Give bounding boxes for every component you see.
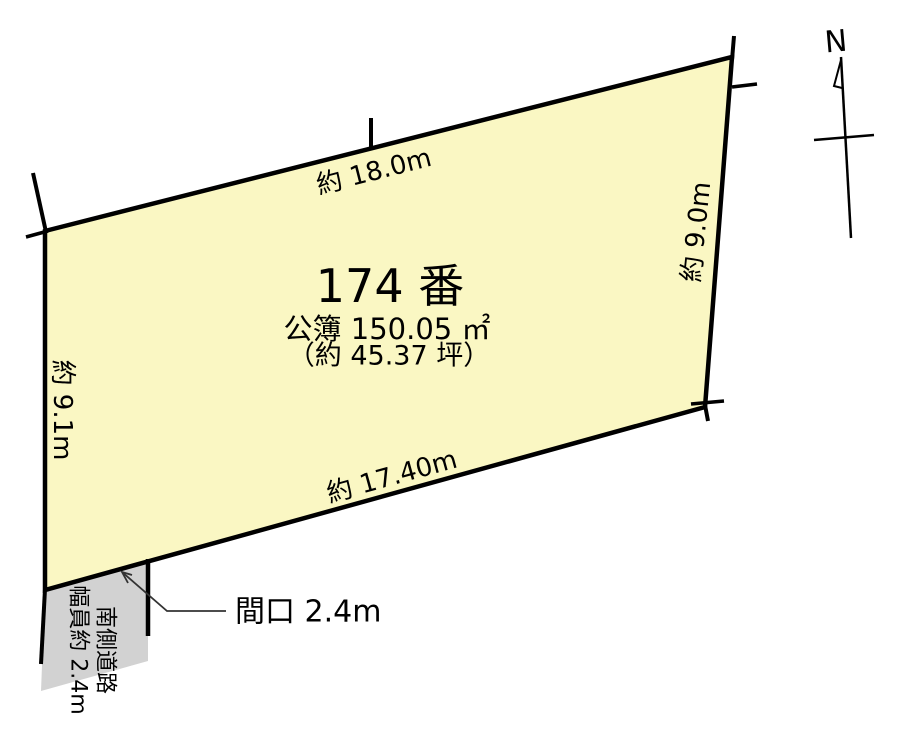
site-plan: 約 18.0m 約 9.0m 約 9.1m 約 17.40m 174 番 公簿 … [0,0,911,748]
right-edge-boundary-tick [732,84,757,87]
top-left-corner-vertical-tick [33,173,46,232]
road-label-line2: 幅員約 2.4m [66,585,91,714]
site-plan-svg: 約 18.0m 約 9.0m 約 9.1m 約 17.40m 174 番 公簿 … [0,0,911,748]
north-arrow-shaft [841,57,851,238]
north-arrow-cross [814,135,874,140]
bottom-right-corner-vertical-tick [705,405,708,421]
road-label-line1: 南側道路 [93,606,118,694]
frontage-label: 間口 2.4m [235,595,381,630]
top-right-corner-vertical-tick [732,36,734,60]
lot-area-tsubo: （約 45.37 坪） [288,341,490,372]
lot-number: 174 番 [316,259,464,313]
north-label: N [823,24,848,61]
edge-label-left: 約 9.1m [47,360,77,461]
